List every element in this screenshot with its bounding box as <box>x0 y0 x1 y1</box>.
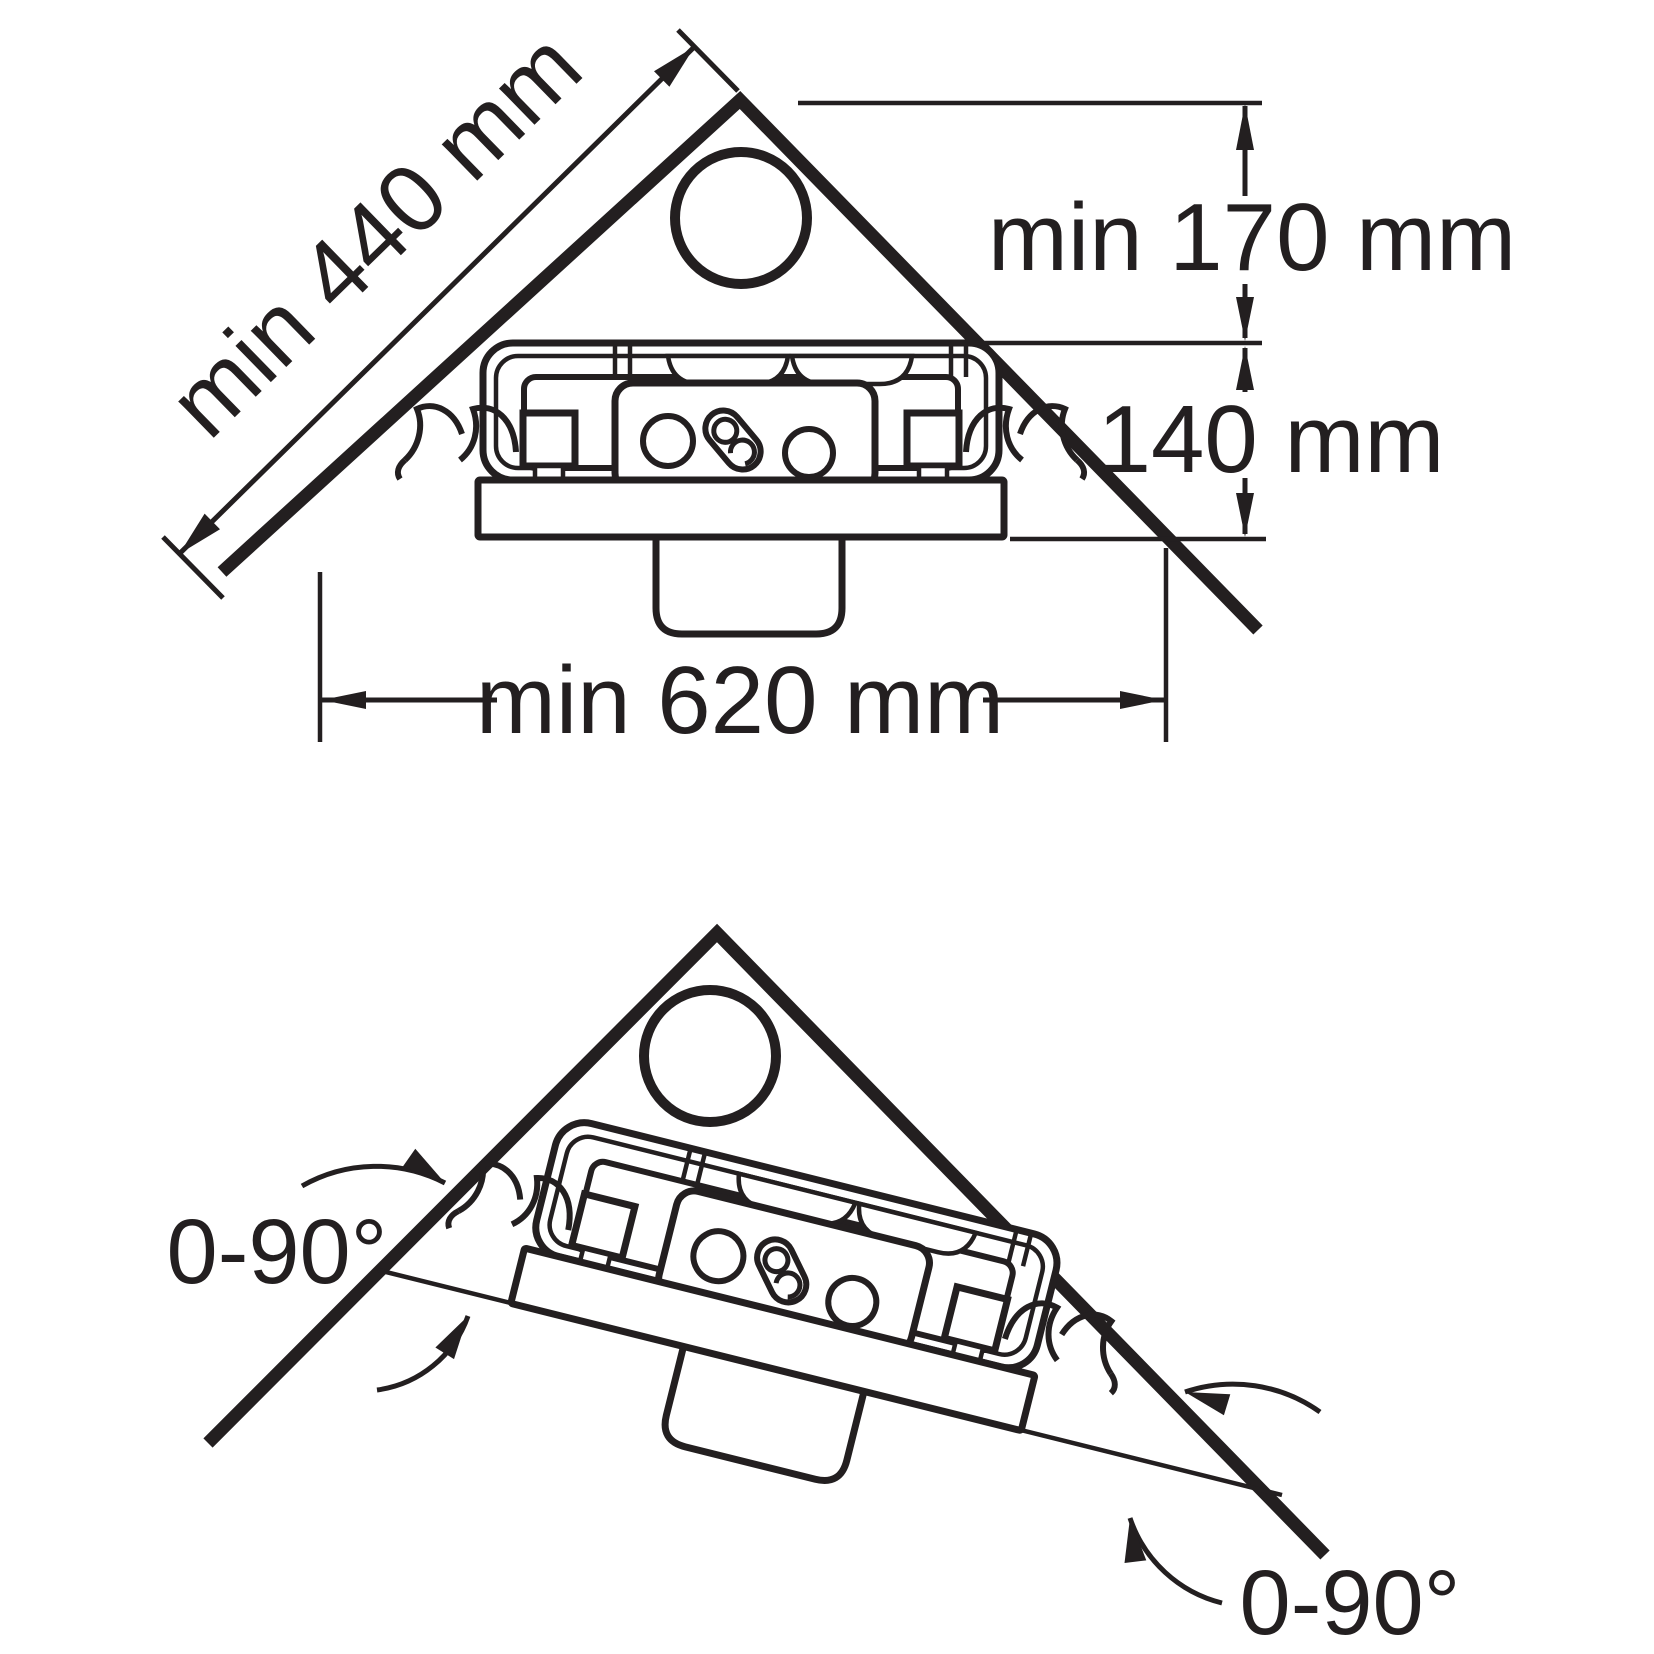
rotation-arcs-left: 0-90° <box>167 1149 468 1390</box>
appliance <box>398 343 1084 634</box>
dim-440-tick-bottom <box>163 537 223 598</box>
arc-left-upper-arrow <box>403 1149 445 1183</box>
dim-620-arrow-right <box>1120 691 1164 709</box>
diagram-page: min 440 mm min 170 mm 140 mm mi <box>0 0 1654 1654</box>
dim-620-label: min 620 mm <box>476 647 1004 754</box>
arc-right-lower-arrow <box>1125 1518 1147 1563</box>
dim-170-label: min 170 mm <box>988 184 1516 291</box>
rotation-right-label: 0-90° <box>1240 1552 1461 1654</box>
dim-170-arrow-up <box>1236 104 1254 150</box>
dim-170-arrow-down <box>1236 297 1254 341</box>
arc-left-lower-arrow <box>435 1316 468 1359</box>
bottom-view: 0-90° 0-90° <box>167 933 1461 1654</box>
rotation-left-label: 0-90° <box>167 1201 388 1303</box>
dim-vertical: min 170 mm 140 mm <box>988 104 1516 537</box>
corner-installation-diagram: min 440 mm min 170 mm 140 mm mi <box>0 0 1654 1654</box>
dim-440-tick-top <box>678 30 738 91</box>
dim-140-label: 140 mm <box>1098 386 1445 493</box>
top-view: min 440 mm min 170 mm 140 mm mi <box>149 12 1516 754</box>
corner-hole <box>675 152 807 284</box>
dim-140-arrow-down <box>1236 493 1254 537</box>
appliance-tilted <box>410 1096 1146 1544</box>
dim-140-arrow-up <box>1236 346 1254 390</box>
dim-620-arrow-left <box>322 691 366 709</box>
corner-hole <box>644 990 776 1122</box>
